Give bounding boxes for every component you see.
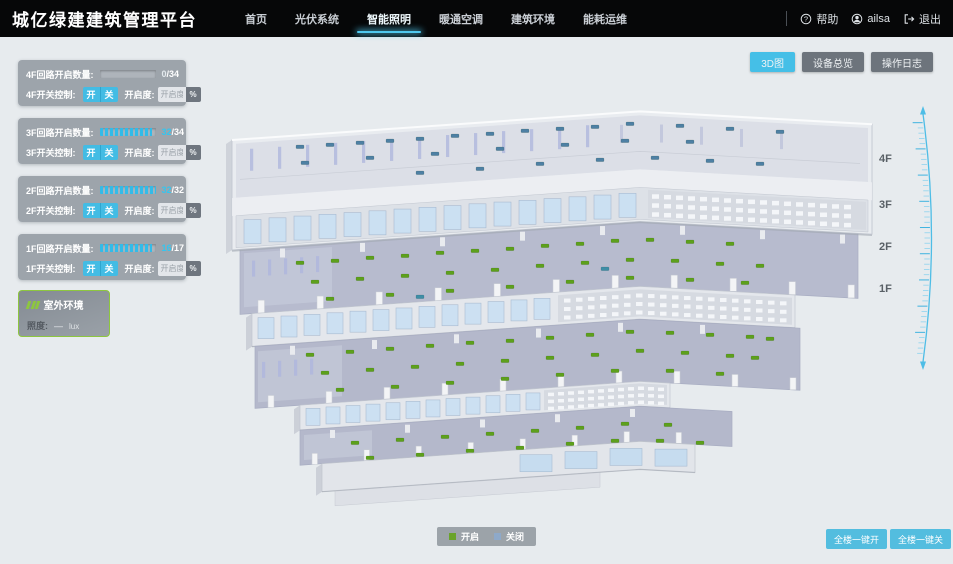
switch-on-button-3f[interactable]: 开	[83, 145, 100, 160]
app-root: 城亿绿建建筑管理平台 首页 光伏系统 智能照明 暖通空调 建筑环境 能耗运维 ?…	[0, 0, 953, 564]
dim-input-4f[interactable]	[158, 87, 186, 102]
circuit-count-value-4f: 0/34	[162, 69, 180, 79]
all-off-button[interactable]: 全楼一键关	[890, 529, 951, 549]
menu-item-pv-system[interactable]: 光伏系统	[281, 0, 353, 37]
legend-on-label: 开启	[461, 530, 479, 543]
dim-percent-button-1f[interactable]: %	[186, 261, 201, 276]
circuit-progressbar-1f	[100, 244, 156, 252]
outdoor-env-panel: 室外环境 照度: — lux	[18, 290, 110, 337]
floor-label-2f[interactable]: 2F	[879, 241, 892, 253]
logout-icon	[903, 13, 915, 25]
floor-panel-2f: 2F回路开启数量: 32/32 2F开关控制: 开 关 开启度: %	[18, 176, 186, 222]
help-icon: ?	[800, 13, 812, 25]
dim-input-3f[interactable]	[158, 145, 186, 160]
dim-input-1f[interactable]	[158, 261, 186, 276]
circuit-progressbar-2f	[100, 186, 156, 194]
floor-label-1f[interactable]: 1F	[879, 283, 892, 295]
circuit-count-value-1f: 16/17	[162, 243, 185, 253]
help-label: 帮助	[816, 11, 838, 27]
circuit-count-value-3f: 32/34	[162, 127, 185, 137]
switch-off-button-4f[interactable]: 关	[100, 87, 118, 102]
circuit-count-label-1f: 1F回路开启数量:	[26, 242, 94, 255]
user-icon	[851, 13, 863, 25]
dim-percent-button-2f[interactable]: %	[186, 203, 201, 218]
switch-on-button-2f[interactable]: 开	[83, 203, 100, 218]
outdoor-env-icon	[27, 301, 39, 309]
illuminance-unit: lux	[69, 322, 79, 331]
bulk-control-buttons: 全楼一键开 全楼一键关	[826, 529, 951, 549]
all-on-button[interactable]: 全楼一键开	[826, 529, 887, 549]
switch-on-button-1f[interactable]: 开	[83, 261, 100, 276]
menu-item-home[interactable]: 首页	[231, 0, 281, 37]
legend-item-off: 关闭	[494, 530, 524, 543]
circuit-count-label-4f: 4F回路开启数量:	[26, 68, 94, 81]
circuit-count-label-3f: 3F回路开启数量:	[26, 126, 94, 139]
floor-panel-3f: 3F回路开启数量: 32/34 3F开关控制: 开 关 开启度: %	[18, 118, 186, 164]
switch-on-button-4f[interactable]: 开	[83, 87, 100, 102]
switch-off-button-3f[interactable]: 关	[100, 145, 118, 160]
device-overview-button[interactable]: 设备总览	[802, 52, 864, 72]
menu-item-smart-lighting[interactable]: 智能照明	[353, 0, 425, 37]
floor-label-3f[interactable]: 3F	[879, 199, 892, 211]
legend-off-swatch	[494, 533, 501, 540]
switch-control-label-3f: 3F开关控制:	[26, 146, 76, 159]
app-title: 城亿绿建建筑管理平台	[12, 6, 197, 31]
dim-label-3f: 开启度:	[125, 146, 155, 159]
circuit-progressbar-4f	[100, 70, 156, 78]
circuit-count-value-2f: 32/32	[162, 185, 185, 195]
dim-label-4f: 开启度:	[125, 88, 155, 101]
switch-off-button-1f[interactable]: 关	[100, 261, 118, 276]
floor-zoom-ruler	[903, 104, 947, 376]
view-3d-button[interactable]: 3D图	[750, 52, 795, 72]
dim-input-2f[interactable]	[158, 203, 186, 218]
navbar-right: ? 帮助 ailsa 退出	[786, 11, 941, 27]
circuit-count-label-2f: 2F回路开启数量:	[26, 184, 94, 197]
menu-item-hvac[interactable]: 暖通空调	[425, 0, 497, 37]
floor-label-4f[interactable]: 4F	[879, 153, 892, 165]
view-mode-buttons: 3D图 设备总览 操作日志	[750, 52, 933, 72]
illuminance-label: 照度:	[27, 319, 48, 332]
dim-label-2f: 开启度:	[125, 204, 155, 217]
top-navbar: 城亿绿建建筑管理平台 首页 光伏系统 智能照明 暖通空调 建筑环境 能耗运维 ?…	[0, 0, 953, 37]
legend-item-on: 开启	[449, 530, 479, 543]
menu-item-energy-ops[interactable]: 能耗运维	[569, 0, 641, 37]
help-link[interactable]: ? 帮助	[800, 11, 838, 27]
user-link[interactable]: ailsa	[851, 13, 890, 25]
dim-percent-button-3f[interactable]: %	[186, 145, 201, 160]
circuit-progressbar-3f	[100, 128, 156, 136]
floor-panel-4f: 4F回路开启数量: 0/34 4F开关控制: 开 关 开启度: %	[18, 60, 186, 106]
dim-percent-button-4f[interactable]: %	[186, 87, 201, 102]
svg-text:?: ?	[804, 14, 808, 23]
menu-item-building-env[interactable]: 建筑环境	[497, 0, 569, 37]
main-menu: 首页 光伏系统 智能照明 暖通空调 建筑环境 能耗运维	[231, 0, 641, 37]
username-label: ailsa	[867, 13, 890, 25]
nav-divider	[786, 11, 787, 26]
switch-control-label-2f: 2F开关控制:	[26, 204, 76, 217]
legend-off-label: 关闭	[506, 530, 524, 543]
floor-control-panels: 4F回路开启数量: 0/34 4F开关控制: 开 关 开启度: % 3F回路开启…	[18, 60, 186, 292]
outdoor-env-title: 室外环境	[44, 297, 84, 312]
floor-panel-1f: 1F回路开启数量: 16/17 1F开关控制: 开 关 开启度: %	[18, 234, 186, 280]
dim-label-1f: 开启度:	[125, 262, 155, 275]
switch-off-button-2f[interactable]: 关	[100, 203, 118, 218]
operation-log-button[interactable]: 操作日志	[871, 52, 933, 72]
switch-control-label-4f: 4F开关控制:	[26, 88, 76, 101]
illuminance-value: —	[54, 321, 63, 331]
lighting-legend: 开启 关闭	[437, 527, 536, 546]
logout-link[interactable]: 退出	[903, 11, 941, 27]
switch-control-label-1f: 1F开关控制:	[26, 262, 76, 275]
legend-on-swatch	[449, 533, 456, 540]
logout-label: 退出	[919, 11, 941, 27]
